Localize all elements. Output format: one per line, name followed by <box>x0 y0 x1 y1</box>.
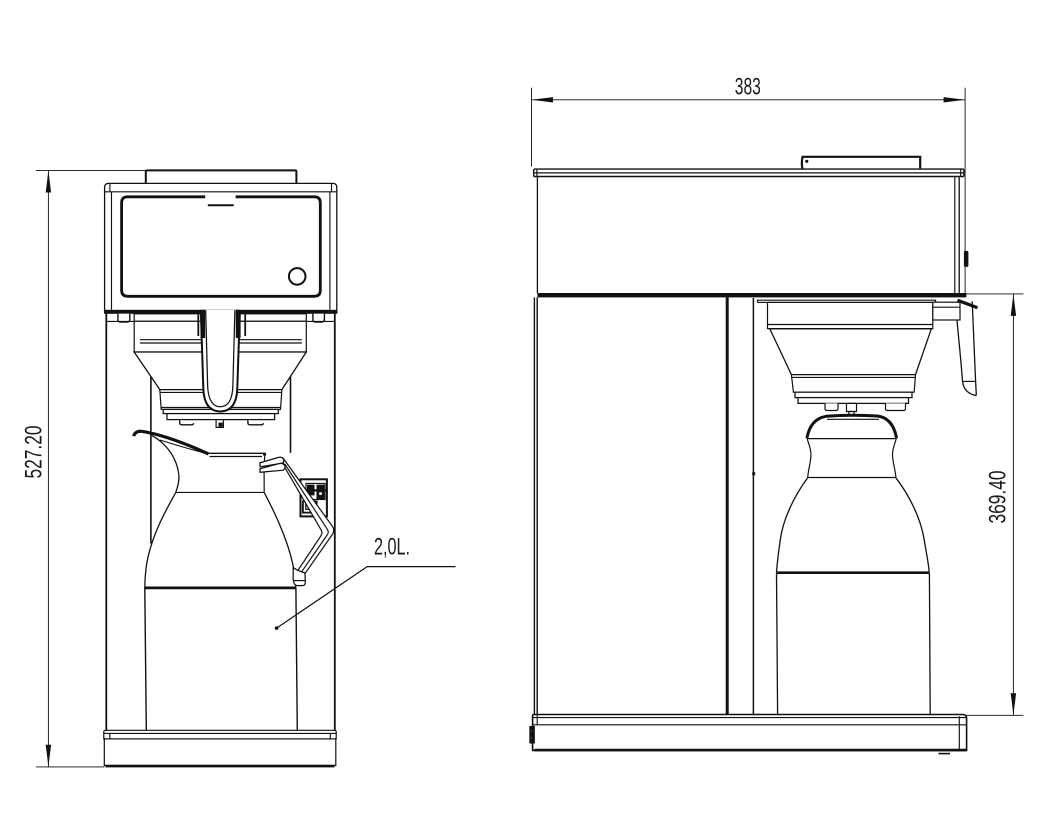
svg-text:527.20: 527.20 <box>21 426 48 479</box>
svg-text:2,0L.: 2,0L. <box>374 534 410 561</box>
svg-text:369.40: 369.40 <box>985 471 1012 524</box>
svg-text:383: 383 <box>735 73 761 100</box>
